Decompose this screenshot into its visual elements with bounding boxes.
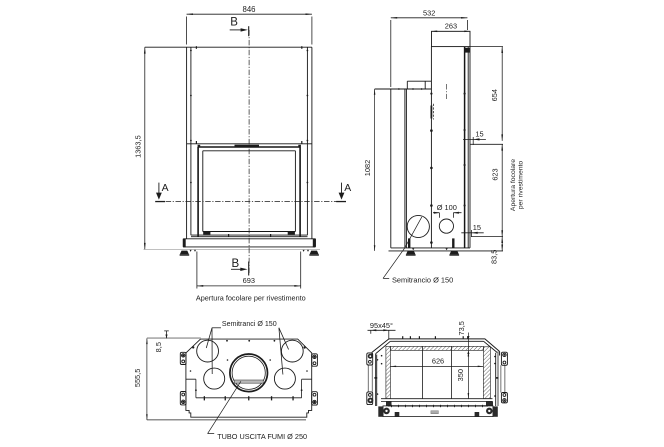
svg-text:350: 350 xyxy=(456,369,465,381)
svg-text:per rivestimento: per rivestimento xyxy=(517,161,524,210)
svg-text:Semitrancio Ø 150: Semitrancio Ø 150 xyxy=(392,275,453,284)
svg-text:Semitranci Ø 150: Semitranci Ø 150 xyxy=(222,320,277,328)
svg-text:B: B xyxy=(230,17,238,29)
svg-text:846: 846 xyxy=(242,5,255,14)
svg-text:B: B xyxy=(232,258,240,270)
svg-text:263: 263 xyxy=(445,21,457,30)
svg-text:A: A xyxy=(344,183,351,194)
svg-text:TUBO USCITA FUMI Ø 250: TUBO USCITA FUMI Ø 250 xyxy=(217,432,307,441)
svg-text:532: 532 xyxy=(423,8,435,17)
svg-text:Ø 100: Ø 100 xyxy=(437,203,457,212)
svg-text:1082: 1082 xyxy=(363,160,372,176)
svg-text:693: 693 xyxy=(243,276,255,285)
svg-text:A: A xyxy=(162,183,169,194)
svg-text:15: 15 xyxy=(475,130,483,139)
svg-text:623: 623 xyxy=(490,168,499,180)
svg-text:1363,5: 1363,5 xyxy=(134,135,143,158)
svg-text:Apertura focolare: Apertura focolare xyxy=(510,159,517,211)
svg-text:83,5: 83,5 xyxy=(490,250,499,264)
svg-text:73,5: 73,5 xyxy=(457,321,466,335)
svg-text:15: 15 xyxy=(473,223,481,232)
svg-text:555,5: 555,5 xyxy=(133,369,142,388)
svg-text:654: 654 xyxy=(490,89,499,101)
svg-text:Apertura focolare per rivestim: Apertura focolare per rivestimento xyxy=(196,293,306,302)
svg-text:626: 626 xyxy=(432,357,444,366)
svg-text:8,5: 8,5 xyxy=(154,342,163,352)
svg-text:95x45°: 95x45° xyxy=(370,321,393,330)
